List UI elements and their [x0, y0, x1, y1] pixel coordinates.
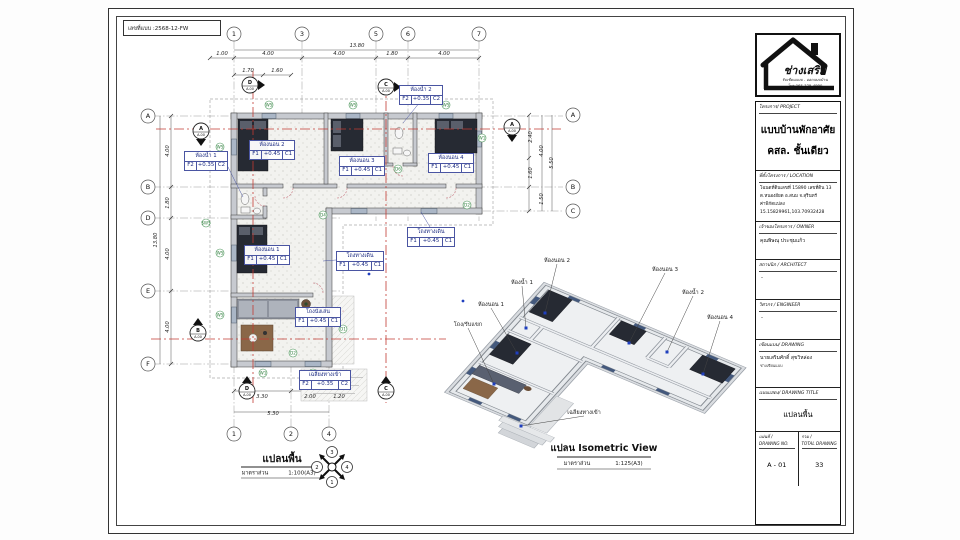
element-tag: D2 — [289, 349, 297, 357]
location-header: ที่ตั้งโครงการ / LOCATION — [759, 173, 837, 183]
svg-text:W5: W5 — [266, 103, 273, 108]
svg-text:C: C — [571, 207, 576, 215]
svg-text:A-00: A-00 — [508, 129, 516, 133]
north-label-top: 3 — [330, 450, 333, 456]
svg-text:F: F — [146, 360, 150, 368]
svg-text:โถง/รับแขก: โถง/รับแขก — [454, 320, 482, 328]
svg-text:W5: W5 — [217, 145, 224, 150]
svg-text:D4: D4 — [320, 213, 326, 218]
title-block: ช่างเสริม รับเขียนแบบ - ออกแบบบ้าน โทร.0… — [755, 25, 841, 525]
svg-text:W5: W5 — [350, 103, 357, 108]
north-label-bottom: 1 — [330, 480, 333, 486]
svg-text:D: D — [145, 214, 150, 222]
svg-text:A-00: A-00 — [382, 393, 390, 397]
project-title-line1: แบบบ้านพักอาศัย — [756, 120, 840, 141]
grid-bubble: F — [141, 357, 155, 371]
dimension-label: 3.30 — [256, 394, 268, 400]
dimension-label: 2.00 — [304, 394, 316, 400]
svg-text:B: B — [196, 328, 200, 334]
svg-text:B: B — [571, 183, 575, 191]
svg-text:A-00: A-00 — [246, 87, 254, 91]
section-marker: DA-00 — [242, 77, 265, 93]
svg-text:W5: W5 — [443, 103, 450, 108]
grid-bubble: E — [141, 284, 155, 298]
svg-text:W1: W1 — [260, 371, 267, 376]
dimension-label: 4.00 — [539, 145, 545, 157]
grid-bubble: B — [141, 180, 155, 194]
svg-text:ห้องน้ำ 2: ห้องน้ำ 2 — [682, 288, 704, 296]
dimension-label: 1.70 — [242, 68, 254, 74]
element-tag: W1 — [259, 369, 267, 377]
svg-text:2: 2 — [289, 430, 293, 438]
svg-text:A-00: A-00 — [382, 89, 390, 93]
svg-text:A-00: A-00 — [194, 335, 202, 339]
grid-bubble: 4 — [322, 427, 336, 441]
grid-bubble: 2 — [284, 427, 298, 441]
svg-text:D: D — [245, 386, 249, 392]
plan-drawing-svg: 13.801.004.004.001.804.001.701.604.001.8… — [109, 9, 853, 533]
drawing-by-name: นายเสริมศักดิ์ สุขวิหล่อง — [756, 352, 840, 362]
engineer-header: วิศวกร / ENGINEER — [759, 302, 837, 312]
grid-bubble: C — [566, 204, 580, 218]
svg-text:ห้องนอน 1: ห้องนอน 1 — [478, 301, 505, 308]
svg-text:D2: D2 — [290, 351, 296, 356]
svg-text:A: A — [571, 111, 576, 119]
svg-text:ห้องน้ำ 1: ห้องน้ำ 1 — [511, 278, 534, 286]
svg-text:ห้องนอน 3: ห้องนอน 3 — [652, 266, 679, 273]
location-line: ค่าพิกัดแปลง — [760, 201, 836, 209]
element-tag: W5 — [216, 143, 224, 151]
svg-text:E: E — [146, 287, 150, 295]
total-value: 33 — [799, 461, 841, 469]
drawing-by-section: เขียนแบบ/ DRAWING นายเสริมศักดิ์ สุขวิหล… — [756, 339, 840, 387]
grid-bubble: A — [566, 108, 580, 122]
svg-text:W1: W1 — [479, 136, 486, 141]
svg-text:6: 6 — [406, 30, 410, 38]
dimension-label: 4.00 — [333, 51, 345, 57]
grid-bubble: 7 — [472, 27, 486, 41]
dimension-label: 5.30 — [267, 411, 279, 417]
owner-section: เจ้าของโครงการ / OWNER คุณพิษณุ ประชุมแก… — [756, 221, 840, 259]
element-tag: W5 — [216, 249, 224, 257]
svg-text:W5: W5 — [217, 251, 224, 256]
svg-text:ห้องนอน 4: ห้องนอน 4 — [707, 314, 734, 321]
dimension-label: 4.00 — [165, 321, 171, 333]
architect-section: สถาปนิก / ARCHITECT - — [756, 259, 840, 299]
sheet-no-value: A - 01 — [756, 461, 798, 469]
iso-scale-value: 1:125(A3) — [615, 461, 642, 467]
drawing-title-value: แปลนพื้น — [756, 400, 840, 431]
svg-text:ห้องนอน 2: ห้องนอน 2 — [544, 257, 570, 264]
dimension-label: 4.00 — [262, 51, 274, 57]
plan-title-block: แปลนพื้น มาตราส่วน 1:100(A3) — [241, 451, 323, 478]
location-line: 15.15829961,103.70932428 — [760, 209, 836, 217]
svg-text:D: D — [248, 80, 252, 86]
paper-sheet: เลขที่แบบ :2568-12-FW — [108, 8, 854, 534]
dimension-label: 1.60 — [528, 167, 534, 179]
svg-text:1: 1 — [232, 30, 236, 38]
iso-title: แปลน Isometric View — [551, 442, 658, 454]
dimension-label: 4.00 — [438, 51, 450, 57]
svg-text:5: 5 — [374, 30, 378, 38]
grid-bubble: 1 — [227, 427, 241, 441]
element-tag: W5 — [216, 311, 224, 319]
svg-text:A: A — [146, 112, 151, 120]
grid-bubble: 3 — [295, 27, 309, 41]
plan-scale-value: 1:100(A3) — [288, 471, 315, 477]
svg-text:1: 1 — [232, 430, 236, 438]
location-section: ที่ตั้งโครงการ / LOCATION โฉนดที่ดินเลขท… — [756, 170, 840, 221]
svg-text:A-00: A-00 — [243, 393, 251, 397]
svg-text:3: 3 — [300, 30, 304, 38]
sheet-number-cell: แผ่นที่ / DRAWING NO. A - 01 — [756, 432, 798, 486]
drawing-title-header: แบบแสดง/ DRAWING TITLE — [759, 390, 837, 400]
svg-text:D1: D1 — [340, 327, 346, 332]
project-section: โครงการ/ PROJECT แบบบ้านพักอาศัย คสล. ชั… — [756, 104, 840, 170]
dimension-label: 1.20 — [333, 394, 345, 400]
element-tag: W5 — [349, 101, 357, 109]
sheet-number-row: แผ่นที่ / DRAWING NO. A - 01 รวม / TOTAL… — [756, 431, 840, 486]
svg-text:B: B — [146, 183, 150, 191]
title-block-main: โครงการ/ PROJECT แบบบ้านพักอาศัย คสล. ชั… — [755, 101, 841, 525]
dimension-label: 13.80 — [350, 43, 366, 49]
company-logo-box: ช่างเสริม รับเขียนแบบ - ออกแบบบ้าน โทร.0… — [755, 33, 841, 97]
engineer-name: - — [756, 312, 840, 339]
dimension-label: 4.00 — [165, 248, 171, 260]
svg-text:A-00: A-00 — [197, 133, 205, 137]
dimension-label: 2.40 — [528, 131, 534, 143]
total-subheader: TOTAL DRAWING — [802, 441, 838, 447]
north-label-right: 4 — [345, 465, 348, 471]
element-tag: W5 — [265, 101, 273, 109]
section-marker: CA-00 — [378, 79, 401, 95]
architect-header: สถาปนิก / ARCHITECT — [759, 262, 837, 272]
project-header: โครงการ/ PROJECT — [759, 104, 837, 114]
section-marker: BA-00 — [190, 318, 206, 341]
location-line: โฉนดที่ดินเลขที่ 15890 เลขที่ดิน 13 — [760, 185, 836, 193]
engineer-section: วิศวกร / ENGINEER - — [756, 299, 840, 339]
isometric-view: ห้องนอน 2ห้องน้ำ 1ห้องนอน 3ห้องน้ำ 2ห้อง… — [433, 257, 746, 491]
plan-title: แปลนพื้น — [262, 451, 301, 465]
dimension-label: 1.60 — [271, 68, 283, 74]
svg-text:7: 7 — [477, 30, 481, 38]
svg-text:เฉลียงทางเข้า: เฉลียงทางเข้า — [567, 409, 601, 416]
element-tag: D4 — [319, 211, 327, 219]
dimension-label: 1.50 — [539, 193, 545, 205]
element-tag: SW5 — [201, 219, 211, 227]
element-tag: D2 — [463, 201, 471, 209]
element-tag: D6 — [394, 165, 402, 173]
owner-name: คุณพิษณุ ประชุมแก้ว — [756, 234, 840, 259]
grid-bubble: 6 — [401, 27, 415, 41]
room-floors — [234, 116, 479, 401]
total-drawing-cell: รวม / TOTAL DRAWING 33 — [798, 432, 841, 486]
section-marker: AA-00 — [193, 123, 209, 146]
svg-text:A: A — [510, 122, 514, 128]
dimension-label: 1.80 — [386, 51, 398, 57]
grid-bubble: D — [141, 211, 155, 225]
element-tag: W5 — [442, 101, 450, 109]
section-marker: CA-00 — [378, 376, 394, 399]
drawing-by-header: เขียนแบบ/ DRAWING — [759, 342, 837, 352]
dimension-label: 1.80 — [165, 197, 171, 209]
grid-bubble: 1 — [227, 27, 241, 41]
location-line: ต.หนองอียด อ.สนม จ.สุรินทร์ — [760, 193, 836, 201]
svg-text:4: 4 — [327, 430, 331, 438]
svg-text:C: C — [384, 386, 388, 392]
owner-header: เจ้าของโครงการ / OWNER — [759, 224, 837, 234]
svg-text:A: A — [199, 126, 203, 132]
plan-scale-label: มาตราส่วน — [242, 470, 269, 477]
project-title-line2: คสล. ชั้นเดียว — [756, 141, 840, 162]
svg-text:W1: W1 — [310, 371, 317, 376]
dimension-label: 1.00 — [216, 51, 228, 57]
dimension-label: 5.50 — [549, 157, 555, 169]
sheet-no-subheader: DRAWING NO. — [759, 441, 795, 447]
grid-bubble: B — [566, 180, 580, 194]
svg-text:D6: D6 — [395, 167, 401, 172]
north-label-left: 2 — [315, 465, 318, 471]
drawing-title-section: แบบแสดง/ DRAWING TITLE แปลนพื้น — [756, 387, 840, 431]
iso-scale-label: มาตราส่วน — [564, 460, 591, 467]
svg-text:SW5: SW5 — [201, 221, 211, 226]
architect-name: - — [756, 272, 840, 299]
north-compass: 3 2 4 1 — [312, 447, 353, 488]
svg-text:D2: D2 — [464, 203, 470, 208]
company-phone: โทร.065-329-4990 — [773, 83, 837, 89]
section-marker: AA-00 — [504, 119, 520, 142]
element-tag: W1 — [478, 134, 486, 142]
svg-text:C: C — [384, 82, 388, 88]
drawing-sheet-page: เลขที่แบบ :2568-12-FW — [0, 0, 960, 540]
dimension-label: 13.80 — [153, 232, 159, 248]
svg-text:W5: W5 — [217, 313, 224, 318]
drawing-by-role: ช่างเขียนแบบ — [756, 362, 840, 387]
dimension-label: 4.00 — [165, 145, 171, 157]
grid-bubble: A — [141, 109, 155, 123]
element-tag: D1 — [339, 325, 347, 333]
grid-bubble: 5 — [369, 27, 383, 41]
element-tag: W1 — [309, 369, 317, 377]
